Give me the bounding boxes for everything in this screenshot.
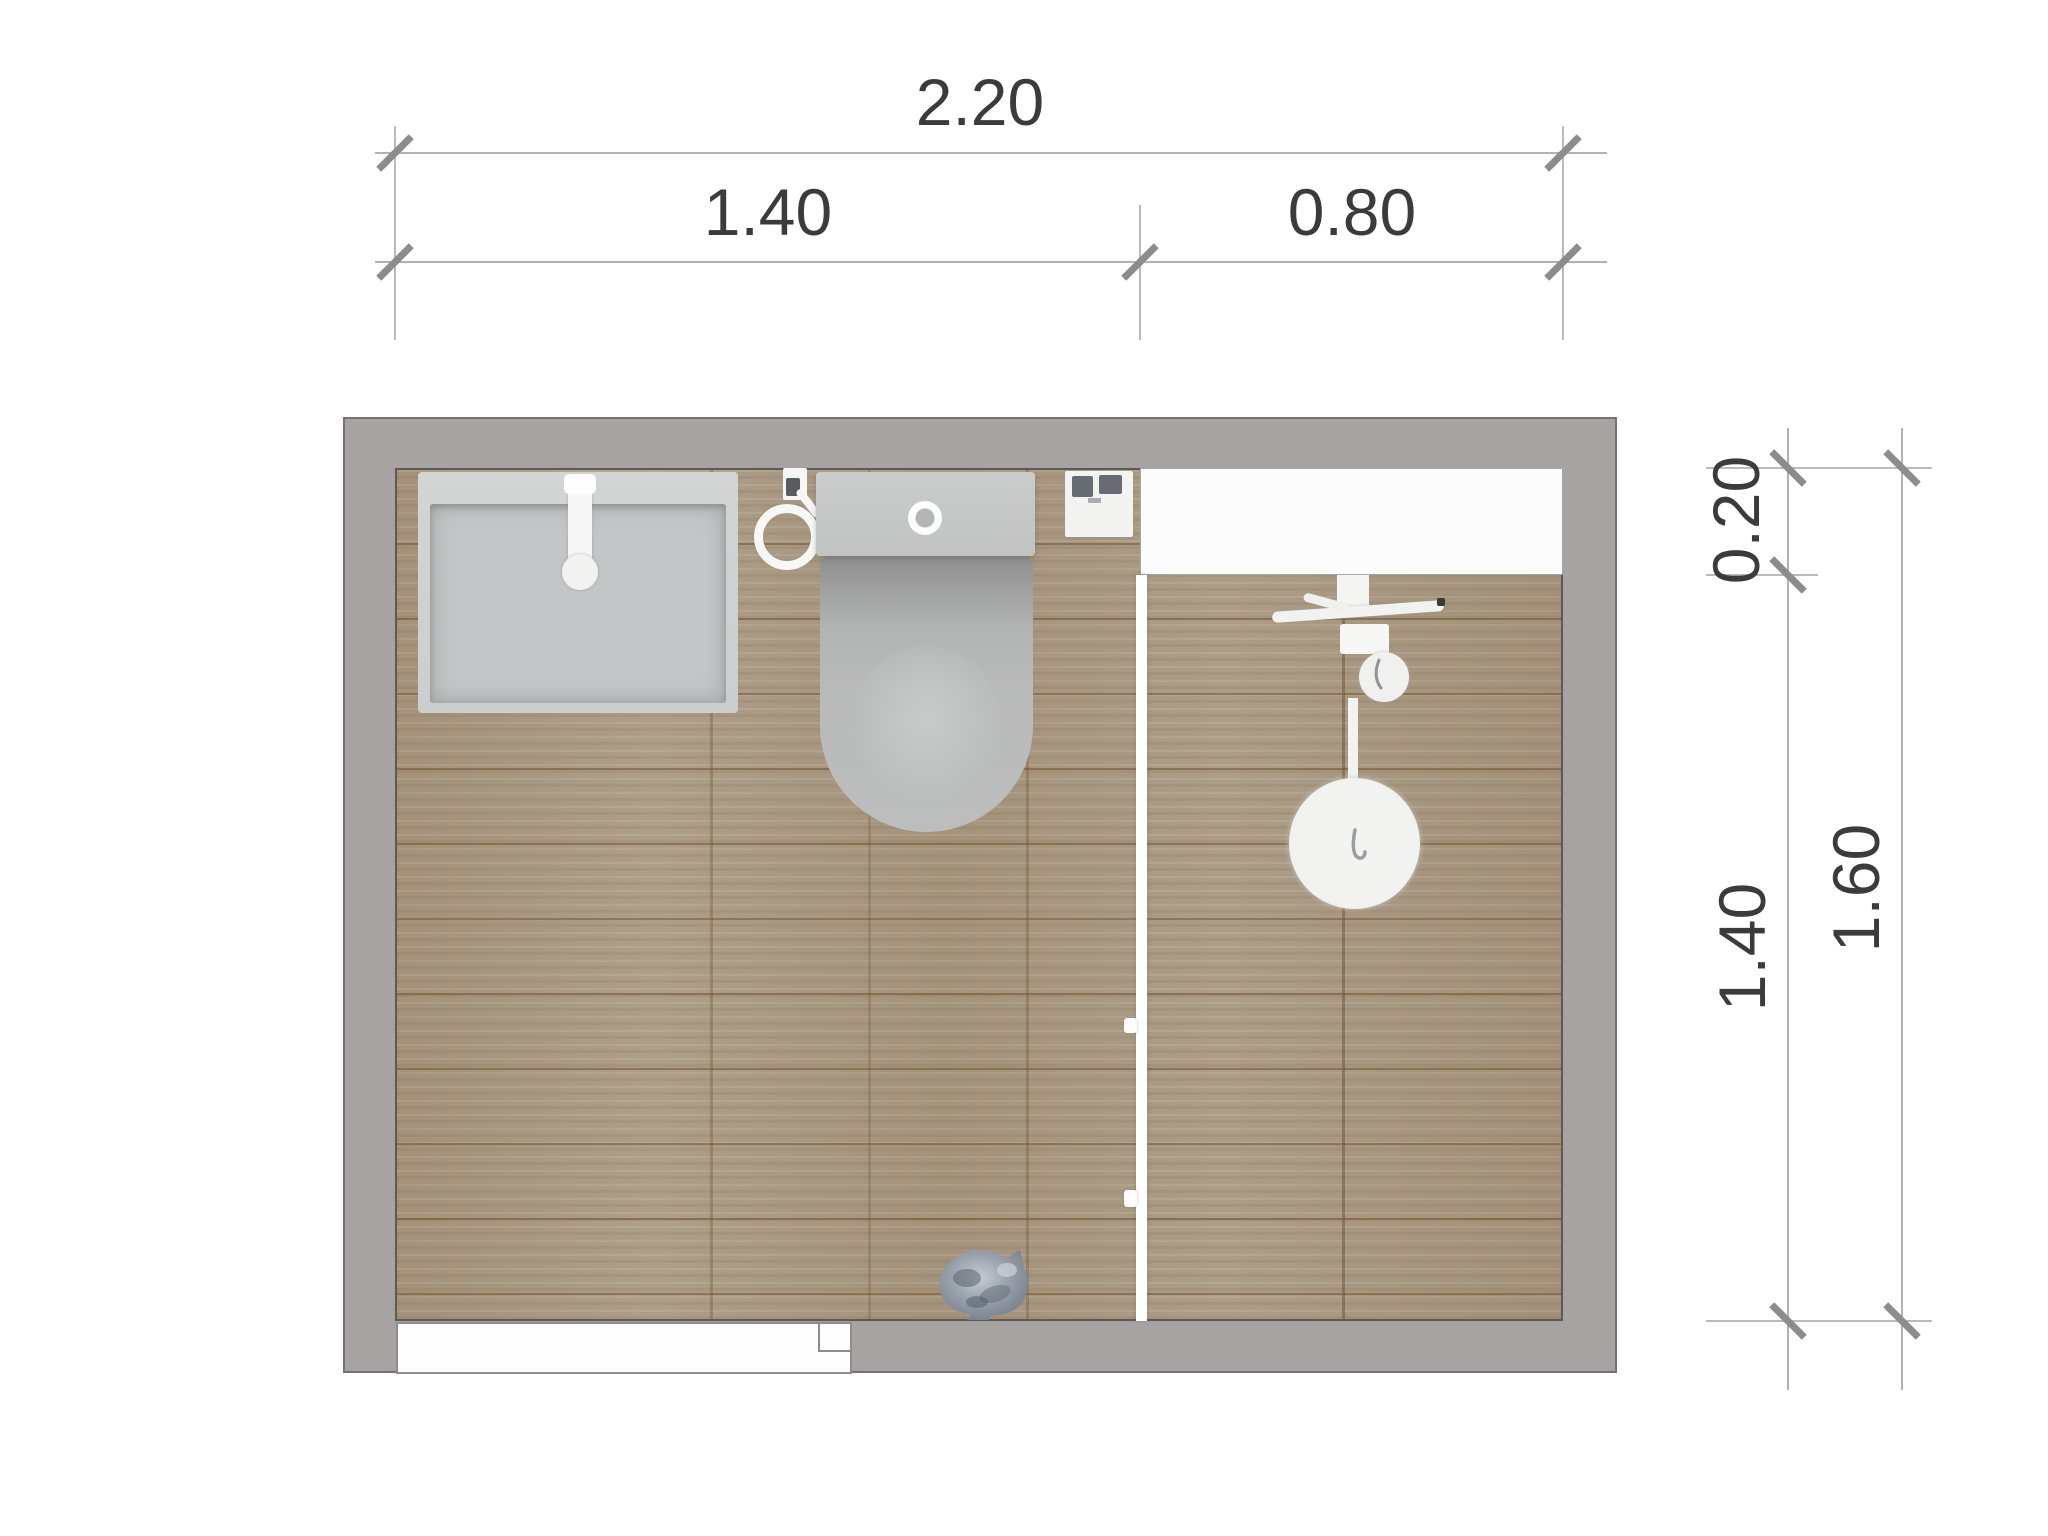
shower-head (1289, 778, 1420, 909)
shower-niche (1140, 468, 1563, 575)
door-frame-notch (818, 1322, 852, 1352)
dim-label-top-left: 1.40 (704, 179, 832, 245)
dim-line-top-total (375, 152, 1607, 154)
ext-line-top-middle (1139, 205, 1141, 340)
toilet-bowl-inner (850, 646, 1003, 806)
dim-label-top-total: 2.20 (916, 69, 1044, 135)
shower-mixer-end-mark (1437, 598, 1445, 606)
cat (933, 1244, 1039, 1320)
dim-line-right-outer (1901, 428, 1903, 1390)
sink-faucet-spout (564, 474, 596, 494)
shower-head-handle-icon (1289, 778, 1420, 909)
shower-valve-body (1340, 624, 1389, 654)
partition-handle-upper (1124, 1018, 1137, 1033)
dim-label-right-niche: 0.20 (1703, 456, 1769, 584)
shower-hose-pipe (1348, 698, 1358, 782)
toilet-paper-ring (754, 504, 820, 570)
dim-label-top-right: 0.80 (1288, 179, 1416, 245)
hand-shower-hose-icon (1359, 652, 1409, 702)
toilet-flush-button (908, 501, 942, 535)
wall-box-pad-right (1099, 475, 1122, 494)
dim-line-top-segments (375, 261, 1607, 263)
partition-handle-lower (1124, 1190, 1137, 1207)
glass-partition (1136, 575, 1147, 1321)
wall-box-mark (1088, 498, 1101, 503)
dim-label-right-room: 1.40 (1709, 883, 1775, 1011)
door-opening (396, 1322, 852, 1374)
wall-box-pad-left (1072, 476, 1093, 497)
toilet-bowl (820, 556, 1033, 832)
hand-shower (1359, 652, 1409, 702)
sink-faucet-base (562, 554, 598, 590)
dim-label-right-total: 1.60 (1823, 824, 1889, 952)
floor-plan-canvas: 2.20 1.40 0.80 0.20 1.40 1.60 (0, 0, 2048, 1536)
